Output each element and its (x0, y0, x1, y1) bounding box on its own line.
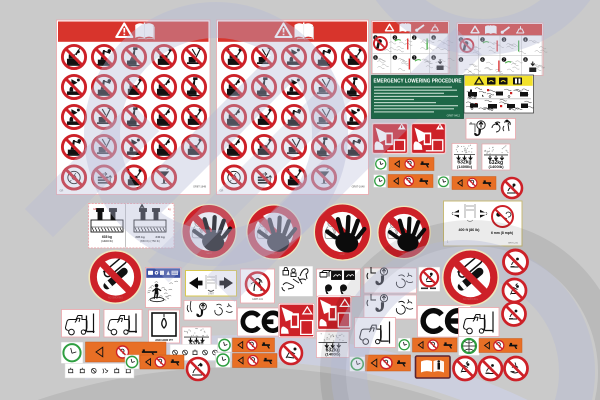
svg-text:7: 7 (413, 56, 415, 60)
svg-text:(1400lb): (1400lb) (457, 164, 473, 169)
svg-text:GR8T-9412: GR8T-9412 (447, 114, 461, 118)
svg-text:EMERGENCY LOWERING PROCEDURE: EMERGENCY LOWERING PROCEDURE (374, 79, 462, 85)
svg-text:GR8T-101: GR8T-101 (252, 298, 264, 301)
svg-text:GR8T-1648: GR8T-1648 (352, 186, 366, 189)
svg-text:GR8T: GR8T (340, 254, 346, 256)
svg-text:3: 3 (413, 36, 415, 40)
svg-text:6: 6 (482, 58, 484, 62)
svg-text:NO SMOKING: NO SMOKING (108, 297, 123, 299)
svg-text:8: 8 (525, 58, 527, 62)
svg-text:2: 2 (394, 36, 396, 40)
svg-text:GB: GB (93, 207, 97, 211)
svg-text:NO SMOKING: NO SMOKING (463, 299, 478, 301)
svg-text:(1400lb): (1400lb) (488, 164, 504, 169)
svg-text:6: 6 (394, 56, 396, 60)
svg-text:GR8T-1648: GR8T-1648 (193, 186, 207, 189)
svg-text:ANCHOR PT: ANCHOR PT (155, 338, 173, 342)
svg-text:(1400 lb): (1400 lb) (101, 239, 113, 243)
svg-text:7: 7 (503, 58, 505, 62)
svg-text:5: 5 (375, 56, 377, 60)
svg-text:GR8T: GR8T (208, 294, 215, 296)
